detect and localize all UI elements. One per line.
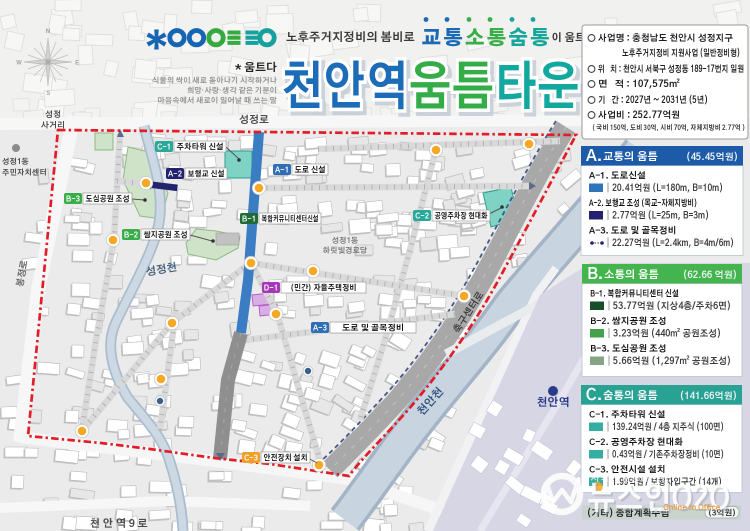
svg-text:(45.45억원): (45.45억원) <box>686 152 738 162</box>
svg-text:5.66억원 (1,297㎡ 공원조성): 5.66억원 (1,297㎡ 공원조성) <box>613 355 731 366</box>
svg-text:천안역: 천안역 <box>537 396 570 409</box>
svg-text:성정1동: 성정1동 <box>332 236 359 245</box>
svg-text:B-2: B-2 <box>124 231 138 239</box>
svg-text:139.24억원 / 4층 지주식 (100면): 139.24억원 / 4층 지주식 (100면) <box>612 421 724 432</box>
svg-text:A-2. 보행교 조성 (목교-자체지방비): A-2. 보행교 조성 (목교-자체지방비) <box>588 198 697 208</box>
svg-text:B-3. 도심공원 조성: B-3. 도심공원 조성 <box>590 344 667 354</box>
svg-text:3.23억원 (440㎡ 공원조성): 3.23억원 (440㎡ 공원조성) <box>613 328 721 339</box>
svg-text:(141.66억원): (141.66억원) <box>680 391 737 401</box>
svg-text:A-2: A-2 <box>167 170 182 178</box>
svg-text:A-1. 도로신설: A-1. 도로신설 <box>588 171 646 181</box>
svg-text:C-3: C-3 <box>244 454 258 462</box>
svg-text:C-2: C-2 <box>415 212 429 220</box>
svg-text:A-1: A-1 <box>274 166 289 174</box>
svg-text:C-1: C-1 <box>157 143 171 151</box>
svg-text:N: N <box>46 28 50 35</box>
svg-text:하릿빛경로당: 하릿빛경로당 <box>323 246 368 255</box>
svg-text:(62.66 억원): (62.66 억원) <box>683 270 737 280</box>
svg-text:A-3: A-3 <box>312 324 327 332</box>
svg-text:식물의 싹이 새로 돋아나기 시작하거나: 식물의 싹이 새로 돋아나기 시작하거나 <box>152 76 278 85</box>
svg-text:B-3: B-3 <box>66 195 80 203</box>
svg-text:22.27억원 (L=2.4km, B=4m/6m): 22.27억원 (L=2.4km, B=4m/6m) <box>612 238 734 248</box>
svg-text:안전장치 설치: 안전장치 설치 <box>264 453 308 462</box>
svg-text:53.77억원 (지상4층/주차6면): 53.77억원 (지상4층/주차6면) <box>613 300 731 311</box>
svg-text:주민자치센터: 주민자치센터 <box>2 168 47 177</box>
svg-text:천안역움틈타운: 천안역움틈타운 <box>280 60 579 116</box>
svg-text:위 치 : 천안시 서북구 성정동 189-17번지 일: 위 치 : 천안시 서북구 성정동 189-17번지 일원 <box>598 63 744 74</box>
svg-text:도로 신설: 도로 신설 <box>295 165 326 174</box>
svg-text:20.41억원 (L=180m, B=10m): 20.41억원 (L=180m, B=10m) <box>612 183 723 193</box>
svg-text:(민간) 자율주택정비: (민간) 자율주택정비 <box>291 282 357 292</box>
svg-text:성정1동: 성정1동 <box>2 157 29 166</box>
svg-text:도로 및 골목정비: 도로 및 골목정비 <box>342 322 404 332</box>
svg-text:도심공원 조성: 도심공원 조성 <box>86 194 130 203</box>
svg-text:B-1: B-1 <box>242 215 256 223</box>
svg-text:Online to Office: Online to Office <box>663 504 721 512</box>
svg-text:S: S <box>46 90 50 97</box>
svg-text:노후주거지정비 지원사업 (일반정비형): 노후주거지정비 지원사업 (일반정비형) <box>622 47 740 58</box>
svg-text:B-1. 복합커뮤니티센터 신설: B-1. 복합커뮤니티센터 신설 <box>590 289 679 299</box>
svg-text:희망·사랑·생각 같은 기분이: 희망·사랑·생각 같은 기분이 <box>187 86 278 95</box>
svg-text:* 움트다: * 움트다 <box>235 61 277 74</box>
svg-text:A.: A. <box>585 149 602 165</box>
svg-text:지역이 성장한 신문: 지역이 성장한 신문 <box>590 472 670 483</box>
svg-text:주차타워 신설: 주차타워 신설 <box>177 142 224 151</box>
svg-text:B-2. 쌈지공원 조성: B-2. 쌈지공원 조성 <box>590 316 667 326</box>
svg-text:사거리: 사거리 <box>41 121 65 130</box>
svg-text:보행교 신설: 보행교 신설 <box>188 169 225 178</box>
svg-text:D-1: D-1 <box>264 284 278 292</box>
svg-text:C-2. 공영주차장 현대화: C-2. 공영주차장 현대화 <box>589 437 683 447</box>
svg-text:0.43억원 / 기존주차장정비 (10면): 0.43억원 / 기존주차장정비 (10면) <box>612 449 724 460</box>
svg-text:소통의 움틈: 소통의 움틈 <box>604 269 659 281</box>
svg-text:기 간 : 2027년 ~ 2031년 (5년): 기 간 : 2027년 ~ 2031년 (5년) <box>598 95 708 105</box>
svg-text:교통의 움틈: 교통의 움틈 <box>603 151 658 163</box>
svg-text:( 국비 150억, 도비 30억, 시비 70억, 자체지: ( 국비 150억, 도비 30억, 시비 70억, 자체지방비 2.77억 ) <box>592 123 745 132</box>
svg-text:A-3. 도로 및 골목정비: A-3. 도로 및 골목정비 <box>588 226 676 236</box>
svg-text:복합커뮤니티센터신설: 복합커뮤니티센터신설 <box>262 214 319 223</box>
svg-text:C-1. 주차타워 신설: C-1. 주차타워 신설 <box>589 410 666 420</box>
svg-text:사업비 : 252.77억원: 사업비 : 252.77억원 <box>597 110 680 120</box>
svg-text:B.: B. <box>587 267 604 283</box>
svg-text:2.77억원 (L=25m, B=3m): 2.77억원 (L=25m, B=3m) <box>612 211 709 221</box>
svg-text:성정로: 성정로 <box>239 114 269 126</box>
svg-text:성정: 성정 <box>45 110 61 119</box>
svg-text:사업명 : 충청남도 천안시 성정지구: 사업명 : 충청남도 천안시 성정지구 <box>597 32 733 43</box>
svg-text:쌈지공원 조성: 쌈지공원 조성 <box>143 230 188 239</box>
svg-text:공영주차장 현대화: 공영주차장 현대화 <box>435 211 488 220</box>
svg-text:마음속에서 새로이 일어날 때 쓰는 말: 마음속에서 새로이 일어날 때 쓰는 말 <box>158 96 278 105</box>
svg-text:E: E <box>75 60 79 67</box>
svg-text:면 적 : 107,575㎡: 면 적 : 107,575㎡ <box>598 78 680 89</box>
svg-text:W: W <box>16 60 22 67</box>
svg-text:C.: C. <box>586 388 603 404</box>
